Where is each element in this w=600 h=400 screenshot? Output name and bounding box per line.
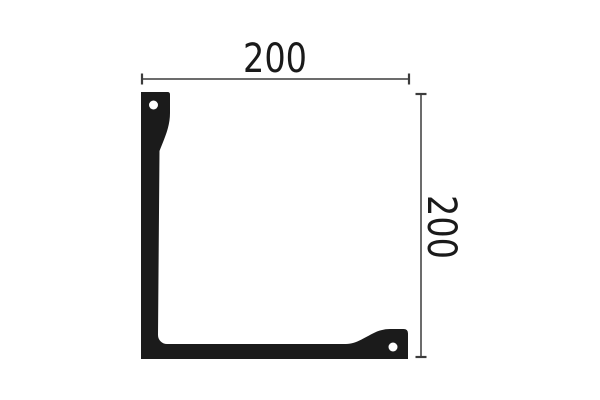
profile-cross-section <box>141 92 408 359</box>
height-dimension-label: 200 <box>418 195 464 259</box>
profile-shape <box>141 92 408 359</box>
screw-hole-bottom-right-icon <box>389 343 398 352</box>
drawing-canvas: 200 200 <box>0 0 600 400</box>
profile-dimension-drawing: 200 200 <box>0 0 600 400</box>
width-dimension-label: 200 <box>243 36 307 82</box>
screw-hole-top-left-icon <box>149 101 158 110</box>
